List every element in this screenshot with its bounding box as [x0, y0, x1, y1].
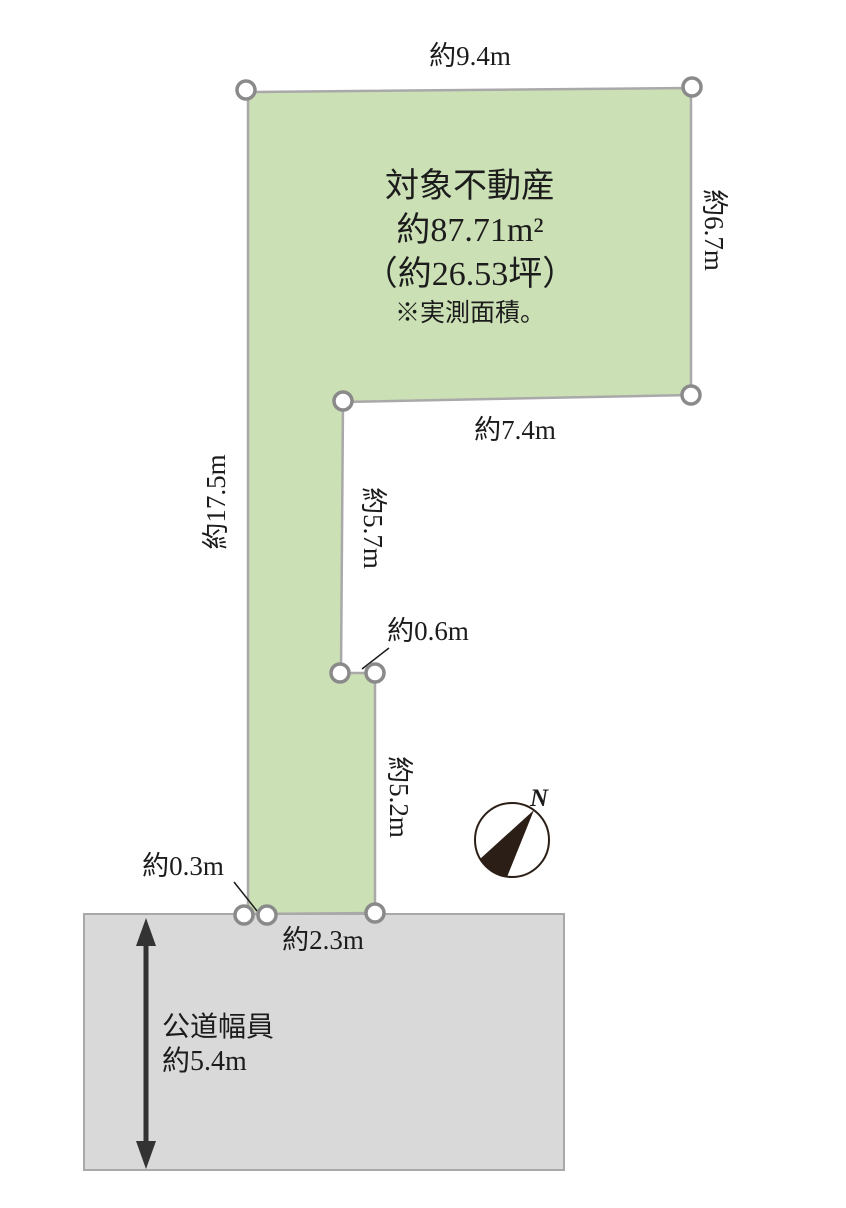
survey-point-notch-right: [366, 664, 384, 682]
dimension-right-edge: 約6.7m: [698, 189, 728, 271]
dimension-notch: 約0.6m: [387, 617, 469, 647]
survey-point-notch-left: [331, 664, 349, 682]
dimension-frontage: 約2.3m: [282, 926, 364, 956]
parcel-title: 対象不動産: [364, 165, 577, 209]
parcel-info-block: 対象不動産 約87.71m² （約26.53坪） ※実測面積。: [364, 165, 577, 331]
survey-point-bottom-left-outer: [235, 906, 253, 924]
survey-point-step-inner: [334, 392, 352, 410]
compass-icon: [475, 803, 549, 877]
survey-point-mid-right: [682, 386, 700, 404]
survey-point-bottom-left-inner: [258, 906, 276, 924]
survey-point-top-left: [237, 81, 255, 99]
dimension-inner-lower-edge: 約5.2m: [383, 756, 413, 838]
dimension-bottom-left-jog: 約0.3m: [142, 852, 224, 882]
dimension-middle-edge: 約7.4m: [474, 416, 556, 446]
dimension-left-edge: 約17.5m: [202, 454, 232, 549]
land-plot-diagram: 対象不動産 約87.71m² （約26.53坪） ※実測面積。 約9.4m 約6…: [0, 0, 846, 1208]
road-width-label-line2: 約5.4m: [162, 1045, 274, 1079]
dimension-inner-upper-edge: 約5.7m: [357, 487, 387, 569]
parcel-area-tsubo: （約26.53坪）: [364, 253, 577, 297]
survey-point-bottom-right: [366, 904, 384, 922]
compass-north-label: N: [530, 785, 548, 813]
road-width-label-line1: 公道幅員: [162, 1011, 274, 1045]
survey-point-top-right: [683, 78, 701, 96]
parcel-area-note: ※実測面積。: [364, 297, 577, 331]
road-width-label: 公道幅員 約5.4m: [162, 1011, 274, 1079]
dimension-top-edge: 約9.4m: [429, 42, 511, 72]
parcel-area-m2: 約87.71m²: [364, 209, 577, 253]
